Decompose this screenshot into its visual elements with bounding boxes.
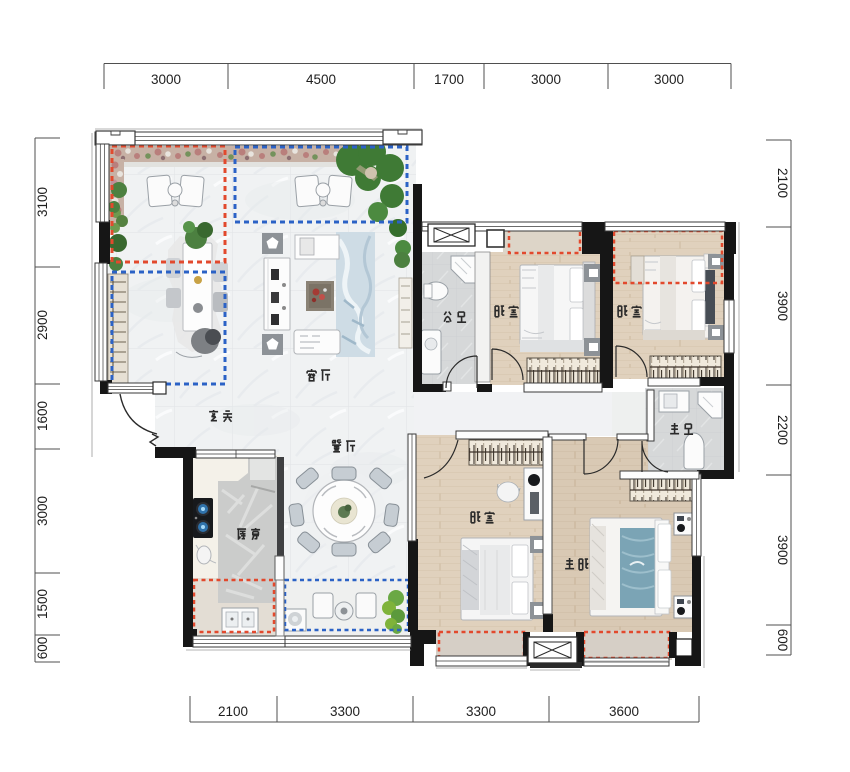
svg-text:3000: 3000	[531, 72, 561, 87]
svg-text:1500: 1500	[35, 589, 50, 619]
svg-text:3900: 3900	[775, 291, 790, 321]
svg-text:1700: 1700	[434, 72, 464, 87]
svg-text:2200: 2200	[775, 415, 790, 445]
svg-text:3900: 3900	[775, 535, 790, 565]
svg-text:1600: 1600	[35, 401, 50, 431]
svg-text:3100: 3100	[35, 187, 50, 217]
svg-text:2100: 2100	[218, 704, 248, 719]
svg-text:3600: 3600	[609, 704, 639, 719]
svg-text:3300: 3300	[466, 704, 496, 719]
svg-text:4500: 4500	[306, 72, 336, 87]
svg-text:600: 600	[775, 629, 790, 652]
svg-text:3000: 3000	[654, 72, 684, 87]
svg-text:3300: 3300	[330, 704, 360, 719]
svg-text:2900: 2900	[35, 310, 50, 340]
svg-text:2100: 2100	[775, 168, 790, 198]
svg-text:600: 600	[35, 637, 50, 660]
svg-text:3000: 3000	[35, 496, 50, 526]
svg-text:3000: 3000	[151, 72, 181, 87]
